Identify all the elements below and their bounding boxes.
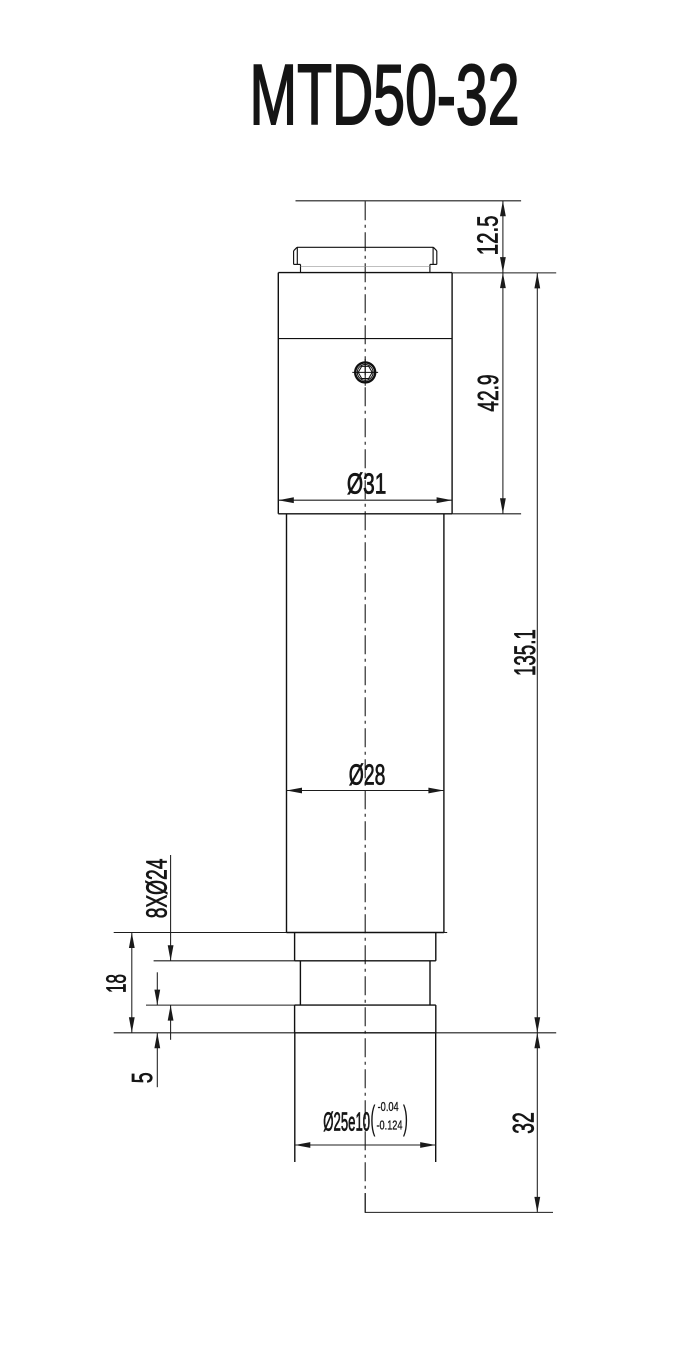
svg-text:Ø28: Ø28 bbox=[349, 759, 386, 791]
svg-text:12.5: 12.5 bbox=[473, 215, 505, 255]
svg-text:Ø25e10: Ø25e10 bbox=[323, 1106, 370, 1136]
svg-text:-0.04: -0.04 bbox=[378, 1100, 399, 1114]
svg-text:(: ( bbox=[370, 1100, 375, 1138]
svg-text:42.9: 42.9 bbox=[473, 374, 505, 411]
svg-text:135.1: 135.1 bbox=[509, 629, 542, 676]
svg-text:18: 18 bbox=[101, 974, 132, 993]
svg-text:5: 5 bbox=[127, 1072, 159, 1083]
svg-text:-0.124: -0.124 bbox=[377, 1118, 403, 1133]
svg-text:): ) bbox=[403, 1100, 408, 1138]
svg-text:Ø31: Ø31 bbox=[347, 468, 387, 500]
svg-text:MTD50-32: MTD50-32 bbox=[250, 48, 520, 143]
svg-text:8XØ24: 8XØ24 bbox=[141, 859, 173, 919]
svg-text:32: 32 bbox=[508, 1112, 541, 1134]
